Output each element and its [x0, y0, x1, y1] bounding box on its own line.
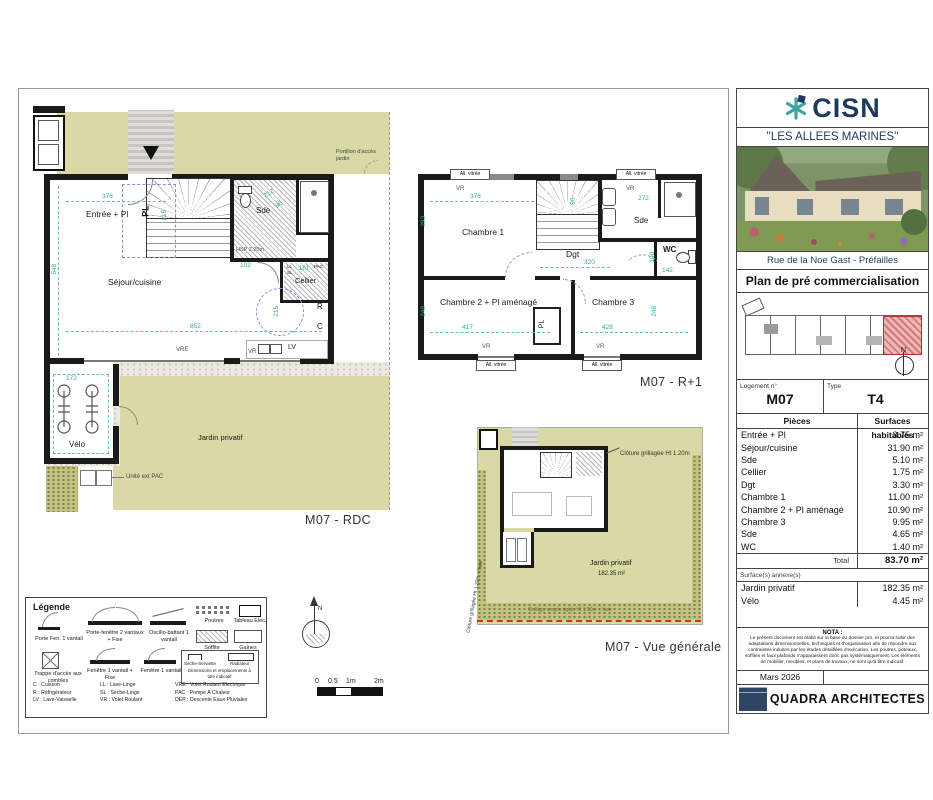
shower-drain-icon: [676, 192, 682, 198]
trappe-symbol: [42, 652, 59, 669]
dim-272: 272: [638, 196, 649, 203]
room-name: Cellier: [737, 467, 857, 477]
legend-abbr-col1: C : CuissonR : RéfrigérateurLV : Lave-Va…: [33, 682, 77, 705]
site-plan-band: [745, 315, 922, 355]
dim-248: 248: [652, 306, 659, 317]
dim-248: 248: [421, 306, 428, 317]
radiateur-symbol: [228, 653, 254, 661]
photo-flowers: [749, 227, 759, 237]
photo-wall: [745, 191, 921, 221]
legend-label: Tableau Elec.: [232, 618, 268, 625]
wall-segment: [620, 354, 702, 360]
col-header-pieces: Pièces: [737, 414, 857, 428]
room-name: Chambre 1: [737, 492, 857, 502]
wall-segment: [44, 174, 128, 180]
legend-label: Porte-fenêtre 2 vantaux + Fixe: [86, 630, 144, 643]
rdc-caption: M07 - RDC: [305, 513, 371, 527]
scale-segment: [336, 688, 351, 695]
soffite-symbol: [196, 630, 228, 643]
architect-row: QUADRA ARCHITECTES: [737, 684, 928, 713]
nota-block: NOTA : Le présent document est établi su…: [737, 628, 928, 670]
north-arrow-icon: [310, 596, 318, 606]
project-title-text: ''LES ALLEES MARINES'': [766, 131, 898, 143]
pl-closet-label: PL: [538, 320, 546, 329]
cloture-label: Clôture grillagée Ht 1.20m: [620, 451, 690, 458]
title-block-panel: CISN ''LES ALLEES MARINES'' Rue de la No…: [736, 88, 929, 714]
date-row: Mars 2026: [737, 670, 928, 684]
lv-label: LV: [288, 344, 296, 352]
photo-window: [885, 199, 903, 215]
allege-vitree-tag: All. vitrée: [476, 360, 516, 371]
dep-enclosure: [479, 429, 498, 450]
abbr-entry: VRE : Volet Roulant Electrique: [175, 682, 247, 690]
dim-96: 96: [570, 198, 577, 205]
pac-label: PAC: [314, 264, 323, 269]
gaines-symbol: [234, 630, 262, 643]
vr-label: VR: [482, 344, 490, 351]
dim-line: [580, 332, 688, 333]
poutres-symbol: [196, 611, 230, 614]
window-glazing: [84, 360, 224, 362]
brand-name: CISN: [812, 93, 881, 124]
bike-icon: [54, 382, 74, 438]
total-value: 83.70 m²: [857, 554, 923, 568]
room-name: Chambre 2 + Pl aménagé: [737, 505, 857, 515]
doc-title-bar: Plan de pré commercialisation: [737, 269, 928, 293]
dep-enclosure: [33, 115, 65, 171]
pl-closet: [533, 307, 561, 345]
dep-roof-bar: [33, 106, 65, 113]
dim-line: [430, 201, 534, 202]
annex-surface: 182.35 m²: [857, 582, 928, 594]
wall-segment: [658, 180, 661, 218]
wall-segment: [534, 528, 608, 532]
window-glazing: [584, 356, 620, 358]
toilet-icon: [676, 252, 690, 263]
abbr-entry: R : Réfrigérateur: [33, 690, 77, 698]
vr-label: VR: [596, 344, 604, 351]
wall-segment: [514, 354, 584, 360]
chambre2-label: Chambre 2 + Pl aménagé: [440, 298, 537, 308]
rdc-fence-line: [389, 112, 390, 510]
toilet-icon: [240, 193, 251, 208]
abbr-entry: LV : Lave-Vaisselle: [33, 697, 77, 705]
washbasin-icon: [602, 188, 616, 206]
entree-label: Entrée + Pl: [86, 210, 128, 220]
dim-215: 215: [162, 210, 169, 221]
chambre1-label: Chambre 1: [462, 228, 504, 238]
bike-icon: [517, 538, 527, 562]
surface-row: Chambre 2 + Pl aménagé 10.90 m²: [737, 503, 928, 515]
scale-tick: 1m: [346, 678, 356, 686]
legend-abbr-col2: LL : Lave-LingeSL : Sèche-LingeVR : Vole…: [100, 682, 142, 705]
surface-row: WC 1.40 m²: [737, 541, 928, 553]
dim-102: 102: [240, 263, 251, 270]
wall-segment: [598, 238, 702, 242]
room-name: Entrée + Pl: [737, 430, 857, 440]
annex-table: Jardin privatif 182.35 m² Vélo 4.45 m²: [737, 582, 928, 628]
legend-label: Porte Fen. 1 vantail: [28, 636, 90, 643]
allege-vitree-label: All. vitrée: [460, 171, 481, 177]
abbr-entry: VR : Volet Roulant: [100, 697, 142, 705]
brand-block: CISN: [737, 89, 928, 127]
dep-box-2: [38, 144, 59, 165]
vue-caption: M07 - Vue générale: [605, 640, 722, 654]
room-surface: 4.65 m²: [857, 528, 928, 540]
dim-376: 376: [470, 194, 481, 201]
room-surface: 1.75 m²: [857, 466, 928, 478]
sink-icon: [258, 344, 270, 354]
room-name: Sde: [737, 529, 857, 539]
room-surface: 31.90 m²: [857, 441, 928, 453]
dim-100: 100: [650, 252, 657, 263]
room-surface: 10.90 m²: [857, 503, 928, 515]
vr-label: VR: [456, 186, 464, 193]
bike-icon: [82, 382, 102, 438]
vue-jardin-label: Jardin privatif: [590, 560, 632, 568]
abbr-entry: LL : Lave-Linge: [100, 682, 142, 690]
annex-row: Jardin privatif 182.35 m²: [737, 582, 928, 594]
chambre3-label: Chambre 3: [592, 298, 634, 308]
abbr-entry: DEP : Descente Eaux Pluviales: [175, 697, 247, 705]
room-name: WC: [737, 542, 857, 552]
dim-velo: 172: [66, 376, 77, 383]
allege-vitree-tag: All. vitrée: [450, 169, 490, 180]
dim-428: 428: [602, 325, 613, 332]
washbasin-icon: [602, 208, 616, 226]
cisn-star-icon: [784, 95, 808, 121]
plan-sheet-page: Portillon d'accès jardin 172 Vélo PL Sde…: [0, 0, 933, 800]
c-label: C: [317, 322, 323, 331]
bike-icon: [506, 538, 516, 562]
stair-winder: [540, 452, 572, 478]
window-glazing: [240, 360, 300, 362]
type-value: T4: [823, 391, 928, 407]
r-label: R: [317, 302, 323, 311]
legend-label: Radiateur: [230, 661, 250, 666]
rdc-path-bottom: [113, 362, 390, 376]
surface-row: Entrée + Pl 3.75 m²: [737, 429, 928, 441]
rdc-garden-bottom: [113, 376, 390, 510]
total-row: Total 83.70 m²: [737, 553, 928, 569]
surface-row: Cellier 1.75 m²: [737, 466, 928, 478]
annex-row: Vélo 4.45 m²: [737, 594, 928, 606]
wall-segment: [696, 174, 702, 360]
stair-winder: [536, 180, 600, 216]
sink-icon: [270, 344, 282, 354]
vre-label: VRE: [176, 347, 188, 354]
wall-segment: [113, 364, 119, 406]
vue-furniture: [566, 496, 592, 516]
logement-label: Logement n°: [740, 383, 777, 390]
wall-segment: [113, 426, 119, 464]
sde-label: Sde: [634, 216, 648, 225]
rdc-entrance-walkway: [128, 110, 174, 174]
dim-320: 320: [584, 260, 595, 267]
pac-unit-box: [96, 470, 112, 486]
date-value: Mars 2026: [737, 671, 823, 684]
photo-window: [797, 199, 813, 215]
ll-label: LL: [287, 264, 292, 269]
allege-vitree-tag: All. vitrée: [582, 360, 622, 371]
legend-label: Poutres: [200, 618, 228, 625]
shower-tray: [664, 182, 696, 217]
dim-line: [430, 332, 550, 333]
dim-161: 161: [299, 266, 309, 272]
site-plan-annex: [741, 297, 764, 316]
dim-852: 852: [190, 324, 201, 331]
vue-fence-red-line: [477, 620, 701, 622]
wall-segment: [418, 174, 424, 360]
shower-drain-icon: [311, 190, 317, 196]
scale-tick: 0: [315, 678, 319, 686]
r1-caption: M07 - R+1: [640, 375, 702, 389]
vr-label: VR: [248, 349, 256, 356]
photo-lawn: [737, 221, 928, 251]
room-surface: 9.95 m²: [857, 516, 928, 528]
surface-row: Dgt 3.30 m²: [737, 479, 928, 491]
project-photo: [737, 147, 928, 251]
vue-furniture: [512, 492, 552, 516]
allege-vitree-label: All. vitrée: [592, 362, 613, 368]
wall-segment: [531, 532, 534, 568]
jardin-label: Jardin privatif: [198, 434, 243, 443]
address-text: Rue de la Noe Gast - Préfailles: [767, 255, 898, 266]
room-surface: 5.10 m²: [857, 454, 928, 466]
site-plan-compass-icon: [903, 352, 904, 376]
vue-bath-floor: [576, 452, 602, 476]
legend-label: Fenêtre 1 vantail: [140, 668, 182, 675]
seche-serviette-symbol: [188, 654, 202, 660]
wall-segment: [418, 354, 478, 360]
rdc-garden-top-left: [57, 112, 128, 174]
site-plan-garage: [764, 324, 778, 334]
rdc-garden-top-right: [174, 112, 390, 174]
north-label: N: [318, 606, 322, 613]
room-surface: 3.75 m²: [857, 429, 928, 441]
legend-note: Dimensions et emplacements à titre indic…: [184, 668, 255, 680]
pac-unit-label: Unité ext PAC: [126, 474, 163, 481]
shower-tray: [300, 181, 329, 233]
allege-vitree-label: All. vitrée: [486, 362, 507, 368]
type-label: Type: [827, 383, 841, 390]
dim-417: 417: [462, 325, 473, 332]
surface-row: Chambre 3 9.95 m²: [737, 516, 928, 528]
legend-label: Oscillo-battant 1 vantail: [146, 630, 192, 643]
grillage-label: Grillage souple rigide Ht 1.50m + haie: [528, 608, 612, 614]
dim-293: 293: [421, 216, 428, 227]
sejour-label: Séjour/cuisine: [108, 278, 161, 288]
room-surface: 11.00 m²: [857, 491, 928, 503]
surface-row: Sde 4.65 m²: [737, 528, 928, 540]
wc-label: WC: [663, 245, 676, 254]
stair-flight: [536, 214, 600, 250]
architect-name: QUADRA ARCHITECTES: [767, 685, 928, 713]
room-name: Dgt: [737, 480, 857, 490]
room-surface: 3.30 m²: [857, 479, 928, 491]
wall-segment: [296, 178, 299, 234]
room-name: Sde: [737, 455, 857, 465]
window-symbol: [150, 621, 186, 625]
vue-jardin-area: 182.35 m²: [598, 571, 625, 578]
nota-text: Le présent document est établi sur la ba…: [742, 636, 923, 666]
cellier-label: Cellier: [295, 277, 316, 286]
site-plan-garage: [866, 336, 882, 345]
wall-segment: [604, 446, 608, 532]
unit-row: Logement n° M07 Type T4: [737, 379, 928, 413]
total-label: Total: [737, 554, 849, 568]
sde-label: Sde: [256, 206, 270, 215]
surface-row: Sde 5.10 m²: [737, 454, 928, 466]
dep-box-1: [38, 120, 59, 141]
pac-leader-line: [111, 477, 124, 478]
scale-bar: [317, 687, 383, 696]
surface-row: Chambre 1 11.00 m²: [737, 491, 928, 503]
dgt-label: Dgt: [566, 250, 579, 260]
dim-215b: 215: [274, 306, 281, 317]
site-plan-compass-icon: [895, 356, 914, 375]
logement-value: M07: [737, 391, 823, 407]
allege-vitree-label: All. vitrée: [626, 171, 647, 177]
site-plan-garage: [816, 336, 832, 345]
room-name: Chambre 3: [737, 517, 857, 527]
vue-walkway: [512, 427, 538, 446]
scale-tick: 0.5: [328, 678, 338, 686]
velo-label: Vélo: [69, 440, 85, 449]
site-plan-thumbnail: N: [737, 293, 928, 379]
window-chassis: [490, 174, 514, 180]
room-surface: 1.40 m²: [857, 541, 928, 553]
rdc-hedge: [46, 466, 78, 512]
legend-label: Fenêtre 1 vantail + Fixe: [84, 668, 136, 681]
pac-unit-box: [80, 470, 96, 486]
abbr-entry: SL : Sèche-Linge: [100, 690, 142, 698]
wall-segment: [44, 174, 50, 364]
sl-label: SL: [287, 270, 293, 275]
wall-segment: [535, 276, 560, 280]
table-header-row: Pièces Surfaces habitables: [737, 413, 928, 429]
dim-142: 142: [662, 268, 673, 275]
project-title: ''LES ALLEES MARINES'': [737, 127, 928, 147]
dim-line: [66, 201, 166, 202]
allege-vitree-tag: All. vitrée: [616, 169, 656, 180]
abbr-entry: PAC : Pompe A Chaleur: [175, 690, 247, 698]
surface-row: Séjour/cuisine 31.90 m²: [737, 441, 928, 453]
vue-hedge-right: [692, 455, 701, 620]
poutres-symbol: [196, 606, 230, 609]
abbr-entry: C : Cuisson: [33, 682, 77, 690]
scale-segment: [351, 688, 382, 695]
tableau-elec-symbol: [239, 605, 261, 617]
annex-name: Vélo: [737, 596, 857, 606]
cell-divider: [823, 671, 824, 684]
door-symbol: [38, 627, 60, 630]
col-header-surfaces: Surfaces habitables: [857, 414, 928, 428]
scale-tick: 2m: [374, 678, 384, 686]
annex-title: Surface(s) annexe(s): [737, 569, 928, 582]
annex-name: Jardin privatif: [737, 583, 857, 593]
vr-label: VR: [626, 186, 634, 193]
dim-line: [540, 267, 610, 268]
annex-surface: 4.45 m²: [857, 594, 928, 606]
address-bar: Rue de la Noe Gast - Préfailles: [737, 251, 928, 269]
hsp-label: HSP 2.20m: [236, 247, 270, 254]
surface-table: Entrée + Pl 3.75 m² Séjour/cuisine 31.90…: [737, 429, 928, 553]
photo-window: [841, 199, 859, 215]
wall-segment: [590, 276, 696, 280]
wall-segment: [44, 458, 119, 464]
wall-segment: [424, 276, 505, 280]
legend-label: Sèche-Serviette: [184, 661, 216, 666]
legend-abbr-col3: VRE : Volet Roulant ElectriquePAC : Pomp…: [175, 682, 247, 705]
photo-bush: [901, 209, 927, 235]
scale-segment: [318, 688, 336, 695]
dim-376: 376: [102, 194, 113, 201]
dim-548: 548: [52, 264, 59, 275]
quadra-logo: [739, 687, 767, 711]
wall-segment: [224, 358, 240, 364]
doc-title-text: Plan de pré commercialisation: [746, 274, 919, 288]
wall-segment: [500, 565, 534, 568]
window-glazing: [478, 356, 514, 358]
entrance-arrow-icon: [143, 146, 159, 160]
legend-title: Légende: [33, 602, 70, 612]
photo-window: [755, 197, 769, 215]
room-name: Séjour/cuisine: [737, 443, 857, 453]
